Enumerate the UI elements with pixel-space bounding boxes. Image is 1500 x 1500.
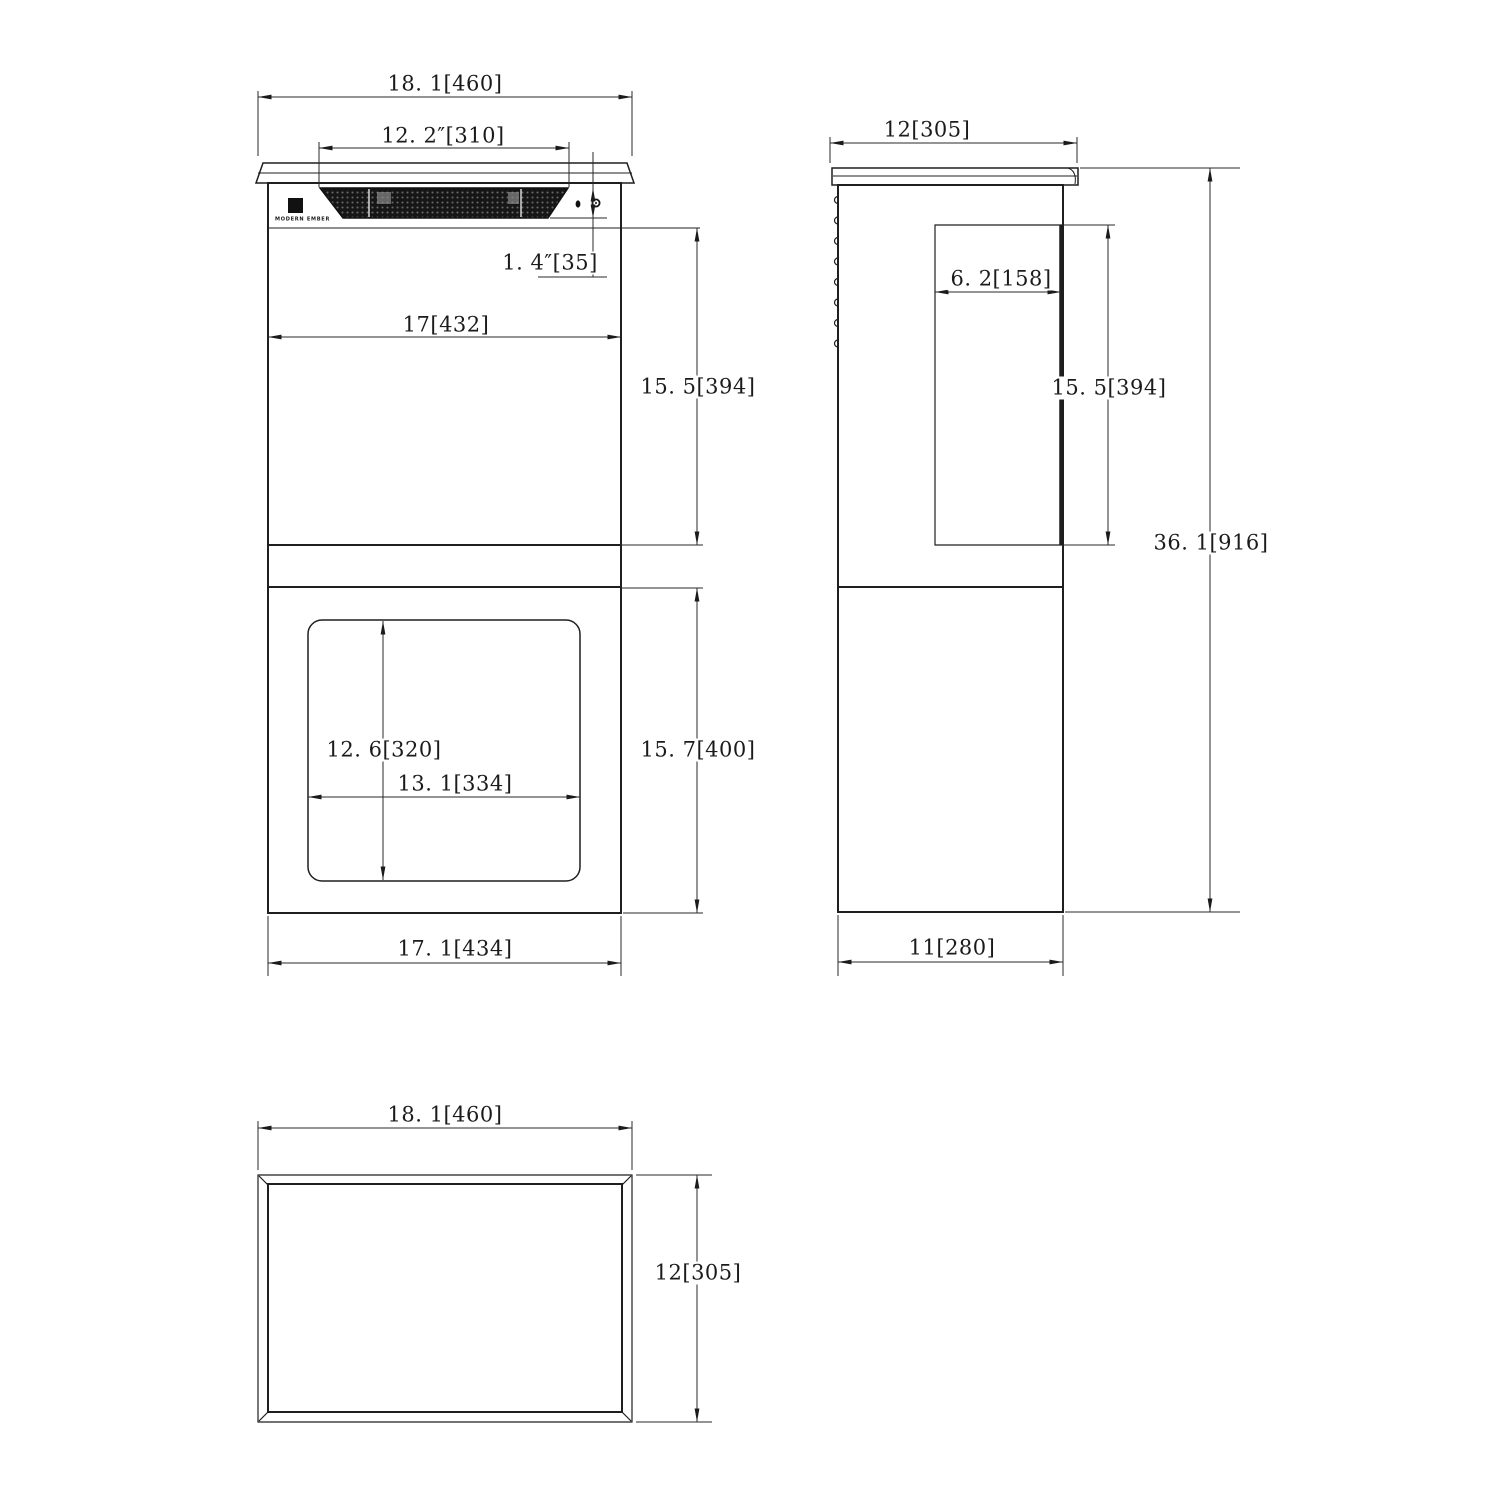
drawing-canvas: 18. 1[460] 12. 2″[310] 1. 4″[35] 17[432]…: [0, 0, 1500, 1500]
front-view: [256, 91, 703, 976]
grille-latch-left: [377, 192, 391, 204]
dim-grille-width: 12. 2″[310]: [378, 125, 507, 148]
dim-bottom-depth: 12[305]: [652, 1262, 745, 1285]
dim-front-overall-width: 18. 1[460]: [385, 73, 506, 96]
bottom-outer-rect: [258, 1175, 632, 1422]
dim-body-width: 17[432]: [400, 314, 493, 337]
dim-front-base-width: 17. 1[434]: [395, 938, 516, 961]
dim-window-height: 12. 6[320]: [324, 739, 445, 762]
dim-side-vent-height: 15. 5[394]: [1049, 377, 1170, 400]
dim-bottom-width: 18. 1[460]: [385, 1104, 506, 1127]
bottom-dimensions: [258, 1121, 712, 1422]
dim-side-base-depth: 11[280]: [906, 937, 999, 960]
dim-grille-height: 1. 4″[35]: [499, 252, 601, 275]
bottom-inner-rect: [268, 1184, 622, 1412]
power-button-dot: [595, 202, 597, 204]
brand-logo-text: MODERN EMBER: [275, 216, 330, 222]
dim-lower-height: 15. 7[400]: [638, 739, 759, 762]
dim-side-overall-height: 36. 1[916]: [1151, 532, 1272, 555]
dim-side-vent-depth: 6. 2[158]: [947, 268, 1054, 291]
grille-latch-right: [508, 192, 519, 204]
front-body: [268, 183, 621, 913]
bottom-corner-bevels: [259, 1176, 631, 1421]
heater-grille: [320, 188, 568, 218]
dim-upper-height: 15. 5[394]: [638, 376, 759, 399]
dim-side-top-depth: 12[305]: [881, 119, 974, 142]
side-dimensions: [830, 137, 1240, 976]
front-dimensions: [258, 91, 703, 976]
bottom-view: [258, 1121, 712, 1422]
logo-mark: [288, 198, 303, 213]
side-body: [838, 185, 1063, 912]
side-view: [830, 137, 1240, 976]
dim-window-width: 13. 1[334]: [395, 773, 516, 796]
indicator-light-icon: [576, 200, 581, 207]
